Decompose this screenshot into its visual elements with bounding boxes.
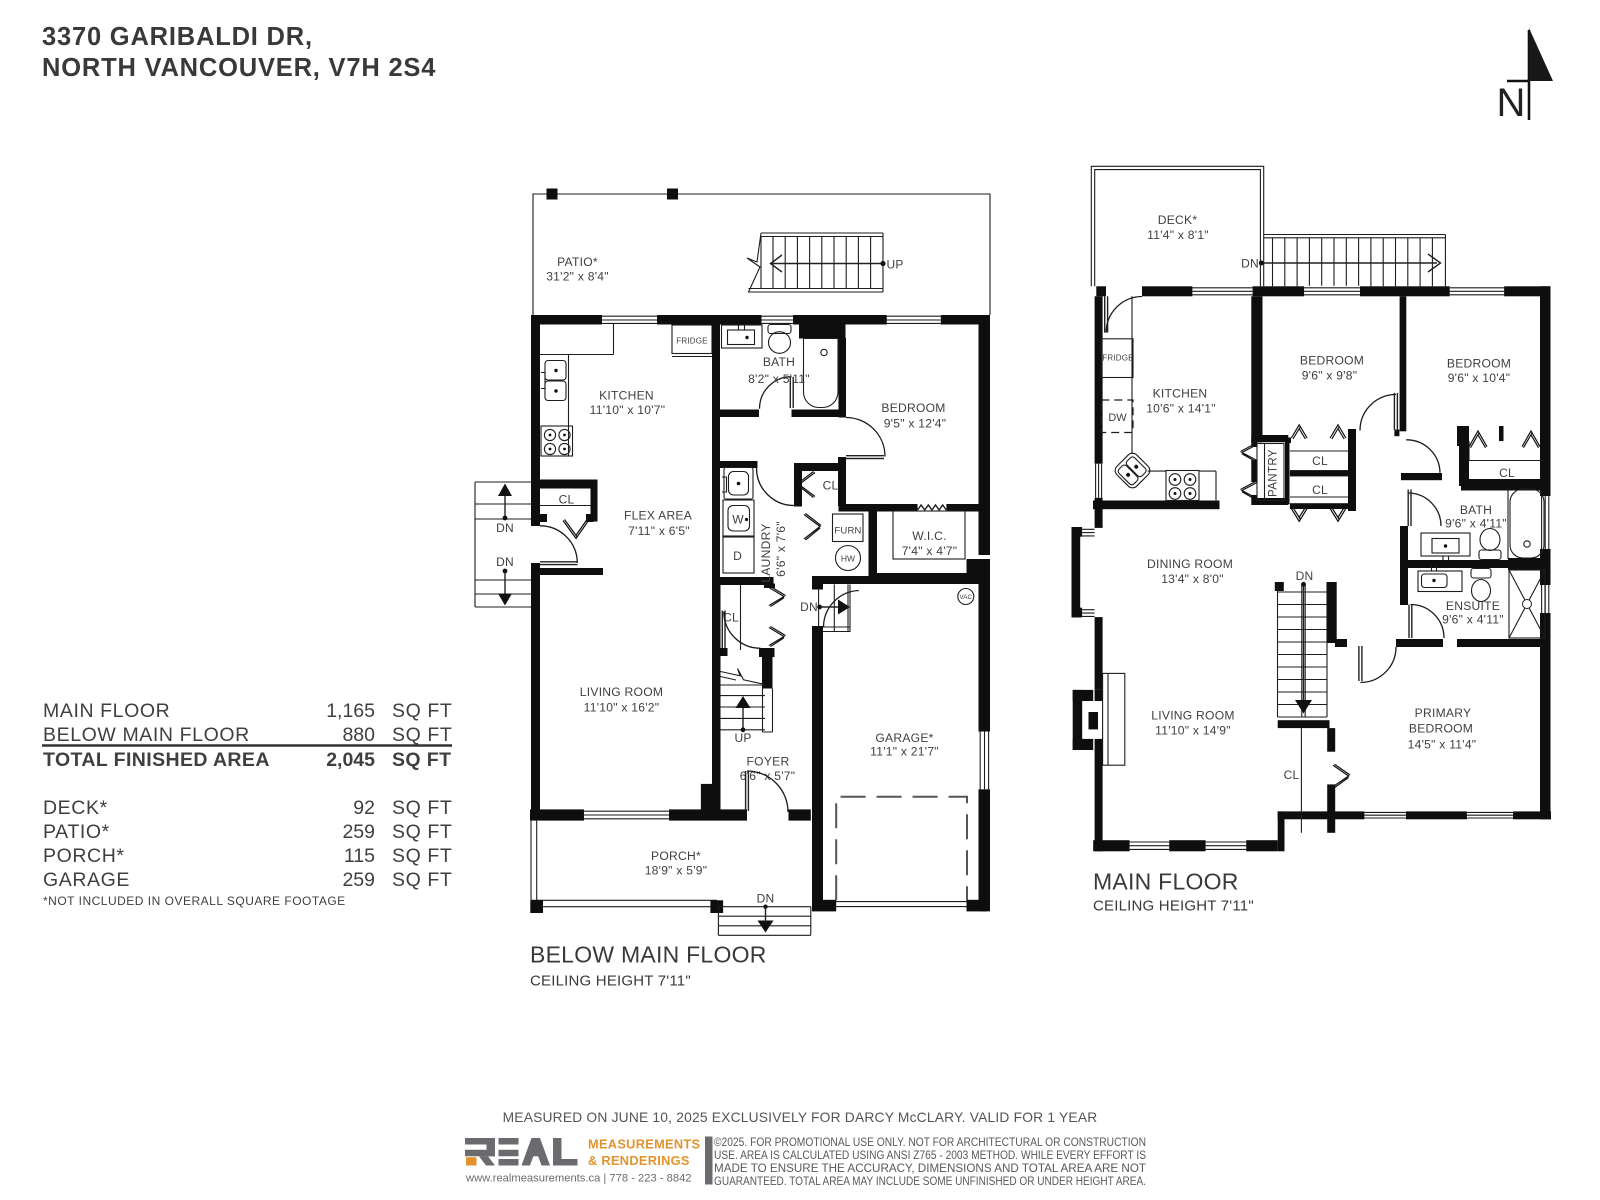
svg-text:11'4" x 8'1": 11'4" x 8'1" — [1147, 228, 1209, 242]
svg-text:TOTAL FINISHED AREA: TOTAL FINISHED AREA — [43, 749, 270, 771]
svg-text:259: 259 — [342, 821, 375, 843]
svg-text:BEDROOM: BEDROOM — [1409, 722, 1473, 736]
svg-text:NORTH VANCOUVER, V7H 2S4: NORTH VANCOUVER, V7H 2S4 — [42, 54, 436, 82]
svg-text:CL: CL — [1499, 466, 1515, 480]
svg-text:6'6" x 7'6": 6'6" x 7'6" — [774, 521, 788, 577]
svg-text:DW: DW — [1108, 412, 1127, 424]
svg-text:MEASURED ON JUNE 10, 2025 EXCL: MEASURED ON JUNE 10, 2025 EXCLUSIVELY FO… — [503, 1110, 1098, 1125]
svg-text:DECK*: DECK* — [1158, 213, 1198, 227]
svg-text:CL: CL — [1284, 768, 1300, 782]
svg-text:2,045: 2,045 — [326, 749, 375, 771]
svg-text:BEDROOM: BEDROOM — [1300, 354, 1364, 368]
svg-text:D: D — [733, 549, 742, 563]
svg-text:MAIN FLOOR: MAIN FLOOR — [43, 700, 170, 722]
svg-text:18'9" x 5'9": 18'9" x 5'9" — [645, 864, 708, 878]
svg-text:©2025. FOR PROMOTIONAL USE ONL: ©2025. FOR PROMOTIONAL USE ONLY. NOT FOR… — [714, 1135, 1146, 1149]
svg-text:FOYER: FOYER — [747, 755, 790, 769]
svg-text:GUARANTEED. TOTAL AREA MAY INC: GUARANTEED. TOTAL AREA MAY INCLUDE SOME … — [714, 1174, 1146, 1188]
svg-text:SQ FT: SQ FT — [392, 845, 452, 867]
svg-text:CEILING HEIGHT 7'11": CEILING HEIGHT 7'11" — [1093, 898, 1254, 915]
svg-text:DN: DN — [496, 521, 514, 535]
svg-text:SQ FT: SQ FT — [392, 869, 452, 891]
svg-text:11'10" x 10'7": 11'10" x 10'7" — [590, 403, 666, 417]
svg-text:BELOW MAIN FLOOR: BELOW MAIN FLOOR — [530, 942, 767, 968]
svg-text:FLEX AREA: FLEX AREA — [624, 509, 693, 523]
svg-text:PRIMARY: PRIMARY — [1415, 706, 1472, 720]
svg-text:GARAGE*: GARAGE* — [875, 731, 933, 745]
svg-text:*NOT INCLUDED IN OVERALL SQUAR: *NOT INCLUDED IN OVERALL SQUARE FOOTAGE — [43, 894, 346, 908]
svg-text:BATH: BATH — [763, 355, 795, 369]
svg-text:FURN: FURN — [834, 526, 861, 537]
svg-text:CL: CL — [823, 479, 839, 493]
svg-text:SQ FT: SQ FT — [392, 821, 452, 843]
svg-text:CEILING HEIGHT 7'11": CEILING HEIGHT 7'11" — [530, 973, 691, 990]
svg-text:1,165: 1,165 — [326, 700, 375, 722]
svg-text:W: W — [732, 513, 744, 527]
svg-text:MEASUREMENTS: MEASUREMENTS — [588, 1137, 701, 1152]
svg-text:3370 GARIBALDI DR,: 3370 GARIBALDI DR, — [42, 23, 313, 51]
svg-text:PORCH*: PORCH* — [43, 845, 125, 867]
svg-text:W.I.C.: W.I.C. — [912, 529, 946, 543]
svg-text:9'6" x 9'8": 9'6" x 9'8" — [1302, 369, 1358, 383]
svg-text:BEDROOM: BEDROOM — [1447, 357, 1511, 371]
svg-text:BEDROOM: BEDROOM — [881, 401, 945, 415]
svg-text:31'2" x 8'4": 31'2" x 8'4" — [546, 270, 609, 284]
svg-text:11'10" x 16'2": 11'10" x 16'2" — [584, 701, 660, 715]
svg-text:BATH: BATH — [1460, 503, 1492, 517]
svg-text:11'1" x 21'7": 11'1" x 21'7" — [870, 745, 939, 759]
svg-text:259: 259 — [342, 869, 375, 891]
svg-text:ENSUITE: ENSUITE — [1446, 599, 1500, 613]
svg-text:9'6" x 4'11": 9'6" x 4'11" — [1442, 613, 1504, 627]
svg-text:7'4" x 4'7": 7'4" x 4'7" — [902, 544, 958, 558]
svg-text:USE. AREA IS CALCULATED USING: USE. AREA IS CALCULATED USING ANSI Z765 … — [714, 1148, 1146, 1162]
svg-text:MAIN FLOOR: MAIN FLOOR — [1093, 869, 1239, 895]
svg-text:9'6" x 10'4": 9'6" x 10'4" — [1448, 371, 1511, 385]
svg-text:880: 880 — [342, 724, 375, 746]
svg-text:KITCHEN: KITCHEN — [599, 389, 654, 403]
svg-text:& RENDERINGS: & RENDERINGS — [588, 1153, 690, 1168]
svg-text:PORCH*: PORCH* — [651, 849, 701, 863]
svg-text:DN: DN — [757, 892, 775, 906]
svg-text:LIVING ROOM: LIVING ROOM — [1151, 709, 1234, 723]
svg-text:115: 115 — [344, 845, 375, 867]
svg-text:8'2" x 5'11": 8'2" x 5'11" — [748, 372, 810, 386]
svg-text:MADE TO ENSURE THE ACCURACY, D: MADE TO ENSURE THE ACCURACY, DIMENSIONS … — [714, 1161, 1146, 1175]
svg-text:DECK*: DECK* — [43, 797, 108, 819]
svg-text:DN: DN — [1241, 257, 1259, 271]
svg-text:CL: CL — [1312, 483, 1328, 497]
svg-text:LIVING ROOM: LIVING ROOM — [580, 685, 663, 699]
svg-text:PATIO*: PATIO* — [43, 821, 110, 843]
svg-text:FRIDGE: FRIDGE — [676, 337, 707, 346]
svg-text:92: 92 — [353, 797, 375, 819]
svg-text:LAUNDRY: LAUNDRY — [759, 523, 773, 582]
svg-text:PATIO*: PATIO* — [557, 255, 598, 269]
svg-text:KITCHEN: KITCHEN — [1153, 387, 1208, 401]
svg-text:11'10" x 14'9": 11'10" x 14'9" — [1155, 724, 1231, 738]
svg-text:9'5" x 12'4": 9'5" x 12'4" — [884, 417, 947, 431]
svg-text:CL: CL — [559, 493, 575, 507]
svg-text:DN: DN — [1296, 569, 1314, 583]
svg-text:DN: DN — [800, 600, 818, 614]
svg-text:HW: HW — [841, 554, 855, 564]
svg-text:UP: UP — [886, 258, 903, 272]
svg-text:SQ FT: SQ FT — [392, 700, 452, 722]
svg-text:DINING ROOM: DINING ROOM — [1147, 557, 1233, 571]
svg-text:9'6" x 4'11": 9'6" x 4'11" — [1445, 517, 1507, 531]
svg-text:13'4" x 8'0": 13'4" x 8'0" — [1161, 572, 1224, 586]
svg-text:PANTRY: PANTRY — [1268, 449, 1280, 497]
svg-text:7'11" x 6'5": 7'11" x 6'5" — [628, 524, 690, 538]
svg-text:CL: CL — [1312, 454, 1328, 468]
svg-text:14'5" x 11'4": 14'5" x 11'4" — [1408, 738, 1477, 752]
svg-text:DN: DN — [496, 555, 514, 569]
svg-text:VAC: VAC — [960, 594, 973, 601]
svg-text:BELOW MAIN FLOOR: BELOW MAIN FLOOR — [43, 724, 250, 746]
svg-text:FRIDGE: FRIDGE — [1102, 354, 1133, 363]
svg-text:www.realmeasurements.ca | 778: www.realmeasurements.ca | 778 - 223 - 88… — [465, 1173, 692, 1185]
svg-text:10'6" x 14'1": 10'6" x 14'1" — [1146, 402, 1216, 416]
svg-text:SQ FT: SQ FT — [392, 797, 452, 819]
svg-text:SQ FT: SQ FT — [392, 724, 452, 746]
svg-text:N: N — [1497, 81, 1526, 125]
svg-text:SQ FT: SQ FT — [392, 749, 451, 771]
svg-text:UP: UP — [734, 731, 751, 745]
svg-text:GARAGE: GARAGE — [43, 869, 130, 891]
